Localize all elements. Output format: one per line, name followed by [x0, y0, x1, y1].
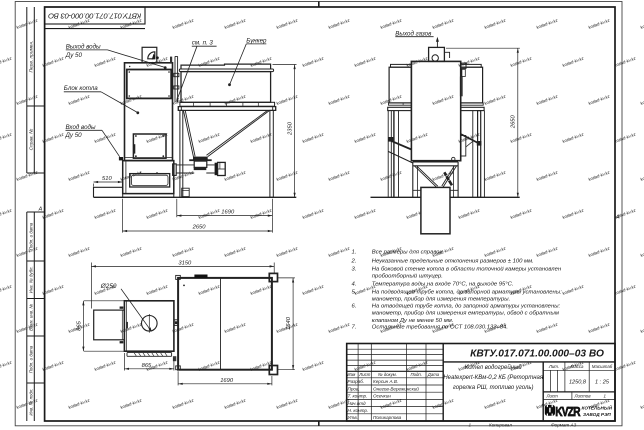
- svg-text:Нач.отд: Нач.отд: [348, 401, 367, 406]
- svg-text:Керсин А.В.: Керсин А.В.: [373, 379, 398, 384]
- svg-text:Выход воды: Выход воды: [66, 43, 101, 50]
- svg-text:1 : 25: 1 : 25: [595, 379, 610, 385]
- svg-text:Взам. инв. №: Взам. инв. №: [28, 303, 33, 330]
- svg-text:Ø250: Ø250: [100, 283, 117, 290]
- svg-text:2650: 2650: [511, 114, 517, 129]
- svg-text:Масса: Масса: [571, 364, 585, 369]
- svg-text:1640: 1640: [286, 316, 292, 330]
- svg-text:Подп. и дата: Подп. и дата: [28, 222, 33, 250]
- svg-text:Масштаб: Масштаб: [592, 364, 613, 369]
- svg-text:см. п. 3: см. п. 3: [192, 40, 214, 47]
- svg-text:пробоотборный штуцер.: пробоотборный штуцер.: [372, 273, 443, 280]
- svg-text:1690: 1690: [220, 378, 234, 384]
- svg-text:горелка РШ, топливо уголь): горелка РШ, топливо уголь): [453, 385, 534, 391]
- svg-text:3.: 3.: [352, 267, 357, 273]
- svg-text:Ду 50: Ду 50: [65, 52, 83, 59]
- svg-text:Дата: Дата: [427, 372, 440, 377]
- svg-text:На отводящей трубе котла, до з: На отводящей трубе котла, до запорной ар…: [372, 303, 561, 310]
- svg-text:КВТУ.017.071.00.000–03 ВО: КВТУ.017.071.00.000–03 ВО: [470, 349, 604, 360]
- svg-text:1690: 1690: [221, 209, 235, 215]
- svg-text:Формат А3: Формат А3: [551, 422, 577, 427]
- svg-text:На подводящей трубе котла, до: На подводящей трубе котла, до запорной а…: [372, 289, 562, 296]
- svg-text:865: 865: [142, 363, 152, 369]
- svg-text:510: 510: [102, 176, 112, 182]
- svg-text:КВТУ.017.071.00.000-03 ВО: КВТУ.017.071.00.000-03 ВО: [48, 12, 141, 21]
- svg-text:Листов: Листов: [574, 394, 592, 399]
- svg-text:Онегов-Вережинский: Онегов-Вережинский: [373, 385, 419, 391]
- svg-text:1.: 1.: [352, 249, 357, 255]
- svg-text:Heatexpert-КВм-0,2 КБ (Ретортн: Heatexpert-КВм-0,2 КБ (Ретортная: [443, 375, 544, 381]
- svg-text:Инв. № дубл.: Инв. № дубл.: [28, 266, 33, 293]
- svg-text:КОТЕЛЬНЫЙ: КОТЕЛЬНЫЙ: [582, 403, 613, 410]
- svg-text:Н. контр.: Н. контр.: [348, 408, 369, 413]
- svg-text:Лит.: Лит.: [548, 364, 559, 369]
- svg-text:Все размеры для справок.: Все размеры для справок.: [372, 249, 444, 255]
- svg-text:Бункер: Бункер: [246, 38, 267, 45]
- svg-text:А: А: [615, 215, 620, 221]
- svg-text:Утв.: Утв.: [348, 415, 358, 420]
- svg-text:Инв. № подл.: Инв. № подл.: [28, 388, 33, 415]
- svg-text:Справ. №: Справ. №: [28, 129, 34, 151]
- svg-text:Подп. и дата: Подп. и дата: [28, 345, 33, 373]
- svg-text:Ду 50: Ду 50: [65, 132, 83, 139]
- svg-text:Пров.: Пров.: [348, 386, 360, 391]
- svg-text:4.: 4.: [352, 282, 357, 288]
- svg-text:2650: 2650: [192, 225, 207, 231]
- svg-text:1: 1: [469, 422, 472, 427]
- svg-text:Поликарпова: Поликарпова: [373, 415, 402, 420]
- svg-text:Котел водогрейный: Котел водогрейный: [465, 364, 523, 371]
- svg-text:манометр, прибор для измерения: манометр, прибор для измерения емператур…: [372, 311, 559, 317]
- svg-text:ЗАВОД РЭП: ЗАВОД РЭП: [583, 412, 611, 417]
- svg-text:865: 865: [76, 320, 82, 330]
- svg-text:Т. контр.: Т. контр.: [348, 394, 368, 399]
- svg-text:1250,8: 1250,8: [569, 379, 587, 385]
- svg-text:Выход газов: Выход газов: [395, 30, 432, 37]
- svg-text:манометр, прибор для измерения: манометр, прибор для измерения температу…: [372, 296, 510, 302]
- svg-text:Перв. примен.: Перв. примен.: [28, 41, 34, 73]
- svg-text:клапаном Ду не менее 50 мм.: клапаном Ду не менее 50 мм.: [372, 318, 454, 324]
- svg-text:Лист: Лист: [546, 394, 559, 399]
- svg-text:Осечкин: Осечкин: [373, 394, 391, 399]
- svg-text:2350: 2350: [288, 121, 294, 136]
- svg-text:Температура воды на входе 70°С: Температура воды на входе 70°С, на выход…: [372, 282, 514, 288]
- svg-text:Лист: Лист: [358, 372, 370, 377]
- svg-text:Подп.: Подп.: [411, 372, 422, 377]
- svg-text:7.: 7.: [352, 325, 357, 331]
- svg-text:Разраб.: Разраб.: [348, 379, 365, 384]
- svg-text:№ докум.: № докум.: [378, 372, 397, 377]
- svg-text:Вход воды: Вход воды: [66, 124, 96, 131]
- svg-text:Остальные требования по ОСТ 10: Остальные требования по ОСТ 108.030.133–…: [372, 325, 508, 331]
- svg-text:Изм: Изм: [347, 372, 355, 377]
- svg-text:6.: 6.: [352, 304, 357, 310]
- svg-text:3150: 3150: [178, 260, 192, 266]
- svg-text:Копировал: Копировал: [489, 422, 512, 427]
- svg-text:5.: 5.: [352, 290, 357, 296]
- svg-text:На боковой стенке котла в обла: На боковой стенке котла в области топочн…: [372, 266, 562, 273]
- svg-text:Неуказанные предельные отклоне: Неуказанные предельные отклонения размер…: [372, 258, 534, 264]
- svg-text:KVZR: KVZR: [555, 405, 580, 419]
- svg-text:2.: 2.: [351, 258, 357, 264]
- svg-text:Блок котла: Блок котла: [64, 85, 98, 92]
